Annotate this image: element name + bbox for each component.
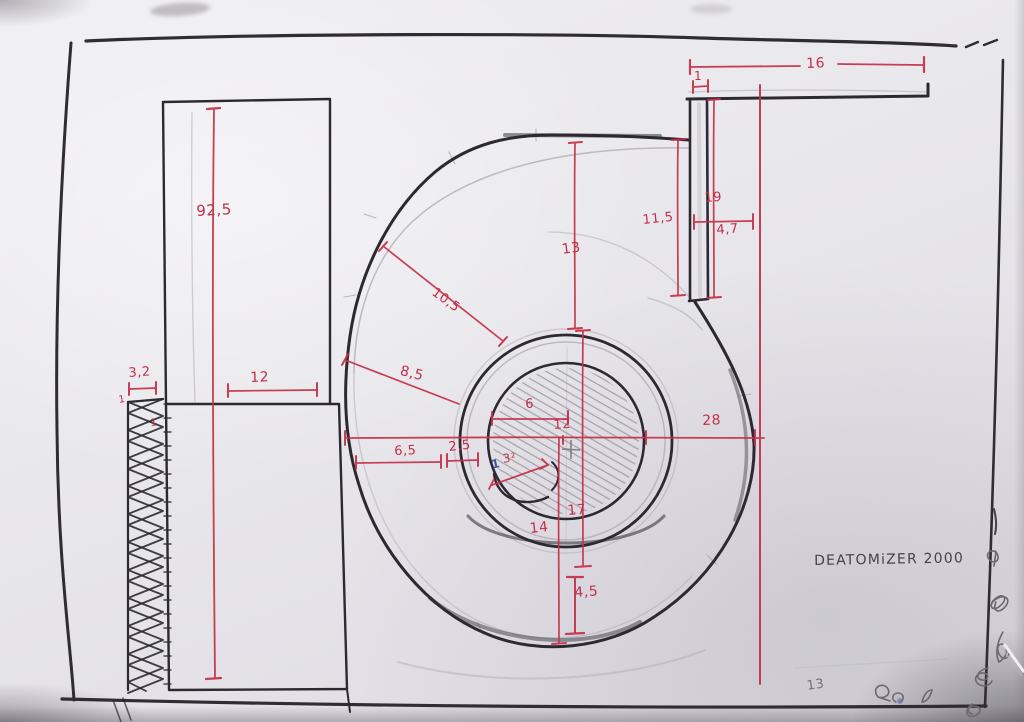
dim-line-3-2 (129, 382, 156, 395)
dim-line-14 (552, 438, 566, 644)
photographed-sketch: 92,5 3,2 1 1 12 16 1 19 11,5 4,7 13 10,5… (0, 0, 1024, 722)
dim-label-6-5: 6,5 (394, 444, 417, 458)
blue-smudge-dot (897, 698, 903, 704)
dim-label-6: 6 (525, 398, 534, 411)
sketch-drawing (0, 0, 1024, 722)
dim-line-right-vertical (760, 85, 761, 684)
dim-label-17: 17 (567, 503, 587, 518)
dim-label-wall-1b: 1 (150, 418, 158, 429)
dim-label-wall-1a: 1 (118, 395, 126, 406)
pen-stroke (994, 509, 996, 534)
pencil-scribble (976, 668, 992, 686)
dim-label-13: 13 (561, 240, 582, 256)
dim-label-hub-red: 3² (502, 451, 517, 465)
dim-label-2-5: 2,5 (448, 439, 471, 454)
pencil-scribble (991, 596, 1008, 611)
border-left (57, 43, 74, 700)
dim-label-16: 16 (806, 56, 825, 71)
border-bottom (62, 699, 986, 707)
dimension-lines (129, 57, 924, 684)
left-duct-upper-rect (163, 99, 330, 404)
dim-label-3-2: 3,2 (128, 365, 151, 380)
outlet-duct (687, 84, 928, 301)
dim-label-92-5: 92,5 (196, 202, 232, 219)
pencil-scribble (922, 690, 932, 702)
dim-label-12-rect: 12 (250, 370, 269, 385)
dim-label-14: 14 (529, 520, 549, 536)
filter-hatch-strip (128, 399, 171, 693)
pencil-scribble (876, 685, 890, 701)
left-duct-lower-rect (166, 404, 350, 712)
dim-line-12-rect (228, 383, 317, 397)
corner-note-13: 13 (806, 678, 825, 693)
dim-label-28: 28 (702, 413, 721, 428)
blower-linework (113, 84, 928, 722)
dim-line-13 (568, 142, 582, 329)
dim-label-1-duct: 1 (694, 70, 702, 82)
dim-label-4-5: 4,5 (574, 584, 599, 600)
sketch-title: DEATOMiZER 2000 (814, 551, 964, 568)
dim-line-92-5 (206, 108, 221, 679)
paper-crease (1001, 644, 1024, 676)
dim-label-11-5: 11,5 (642, 211, 674, 227)
volute-outline (346, 135, 754, 647)
dim-label-4-7: 4,7 (716, 222, 739, 237)
dim-label-12-center: 12 (553, 418, 571, 432)
dim-label-19: 19 (704, 191, 722, 205)
